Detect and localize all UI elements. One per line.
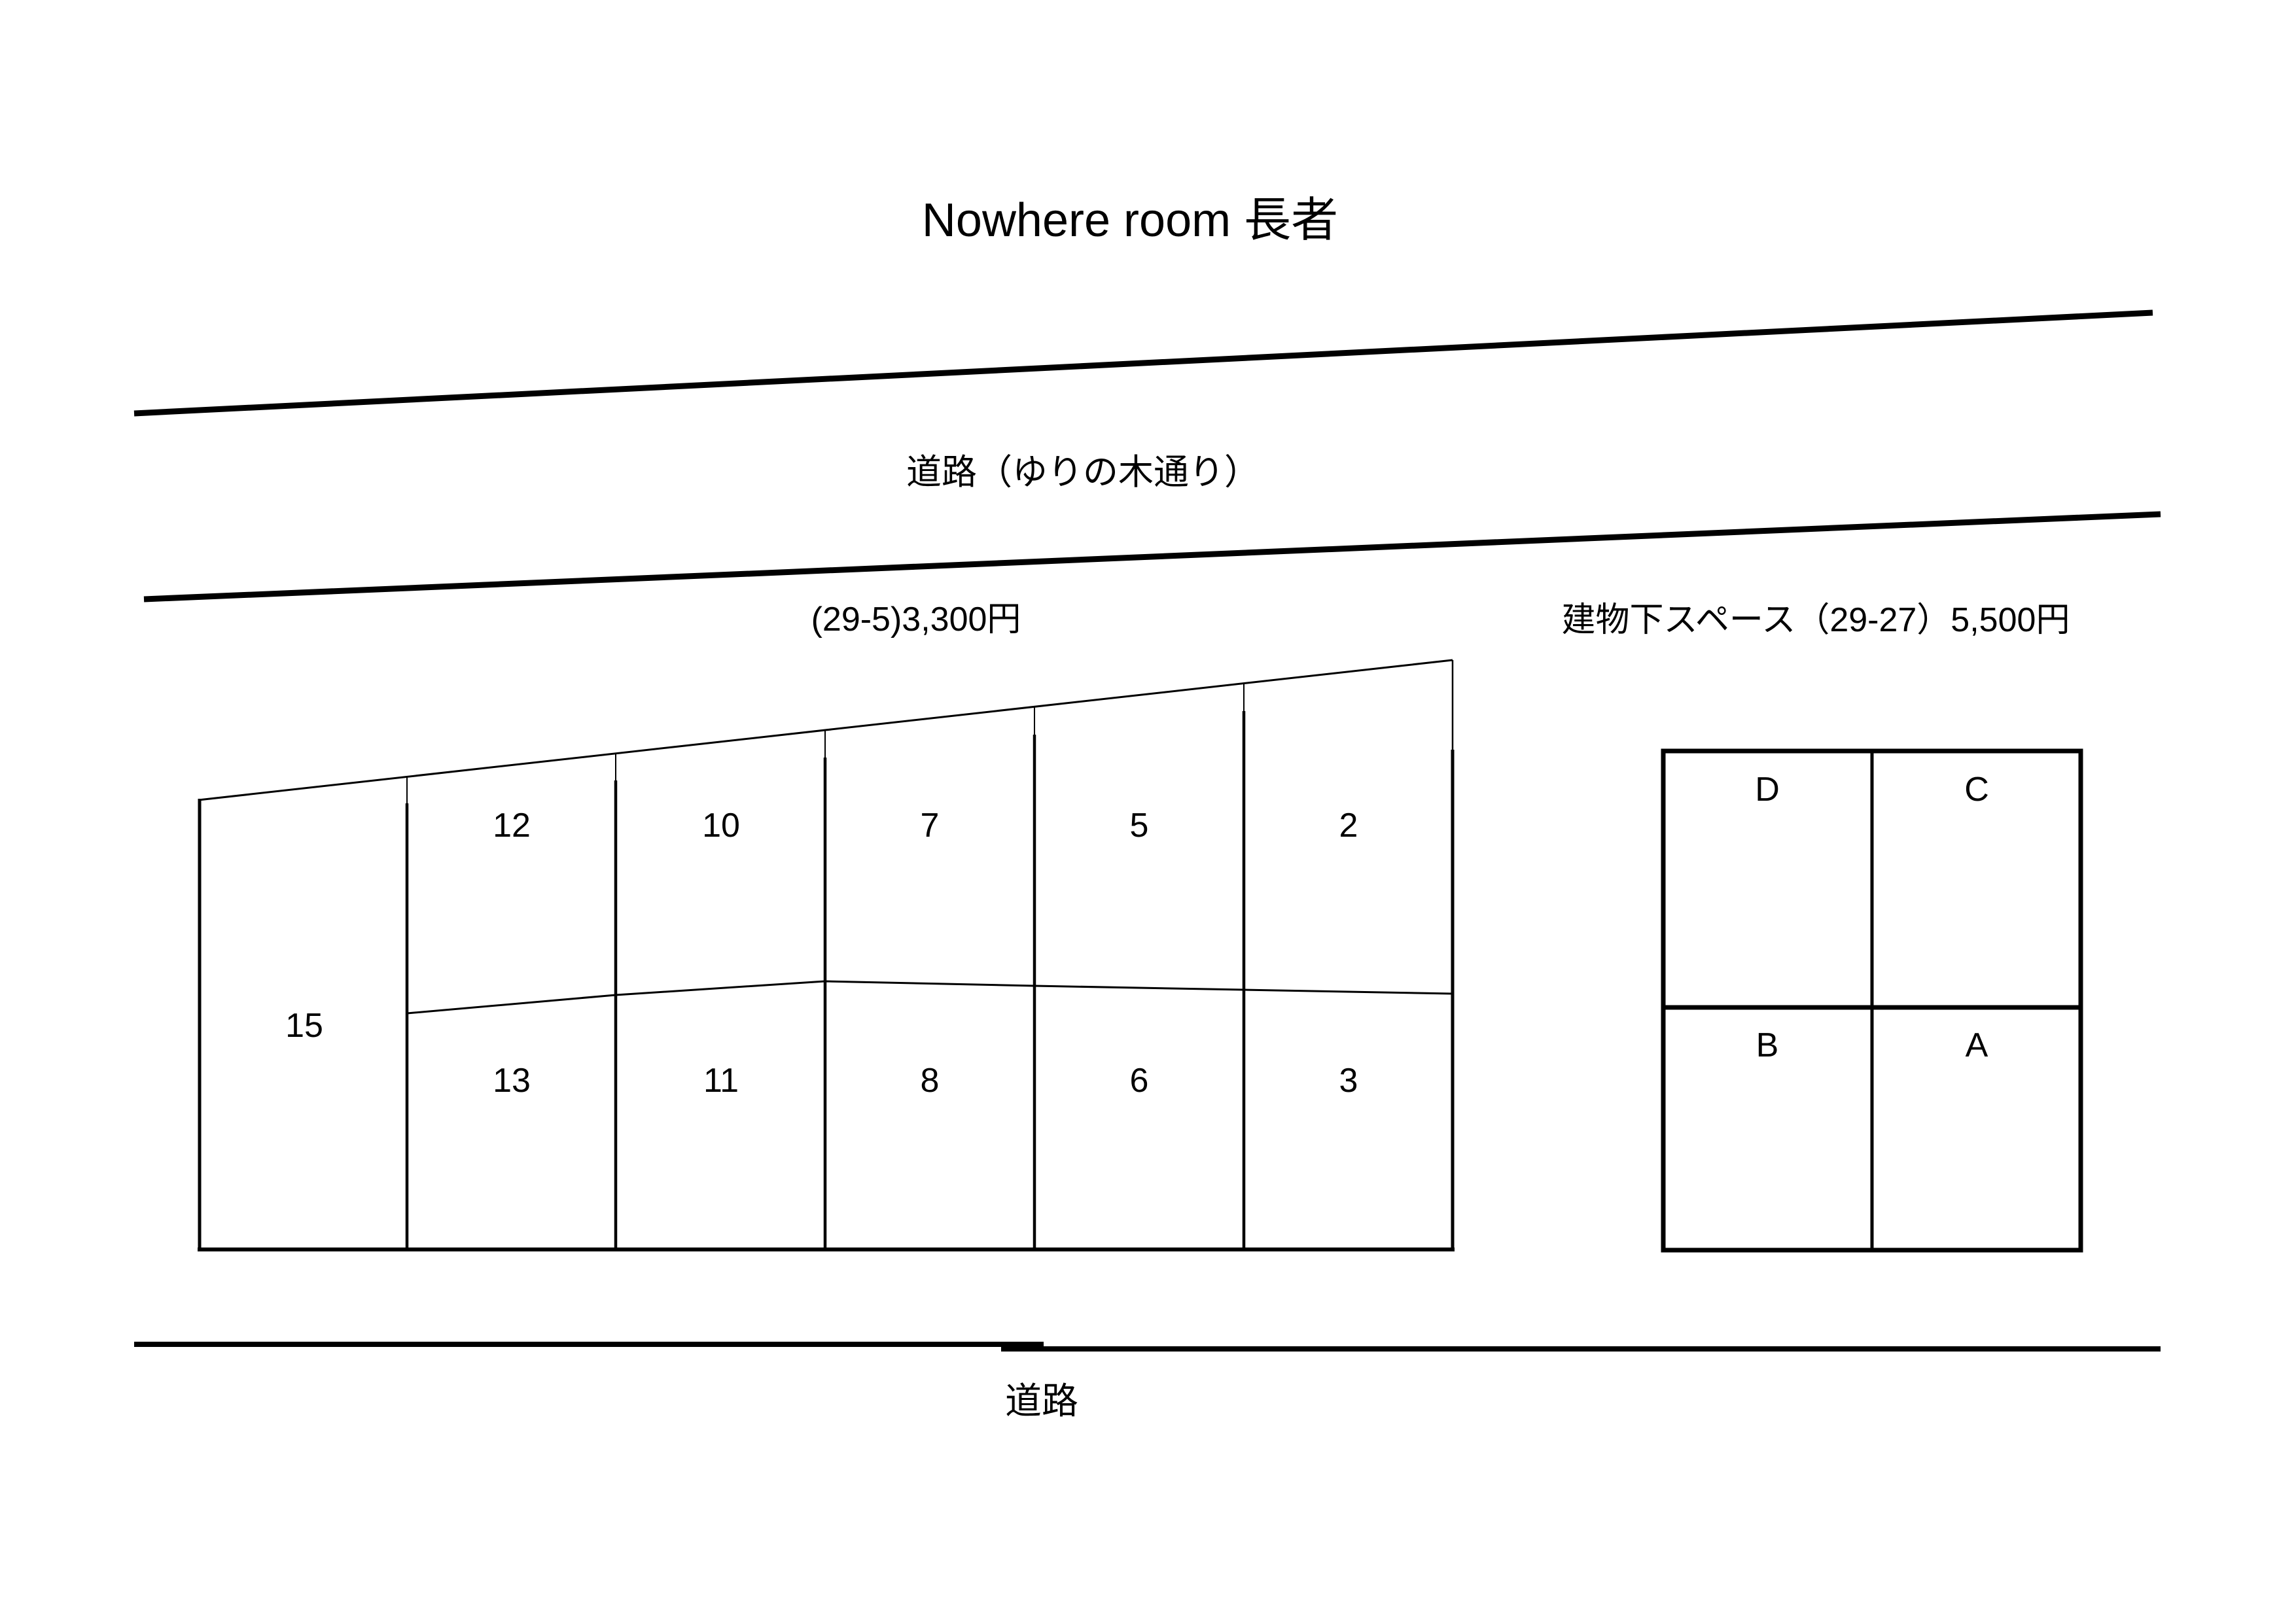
space-label-A: A [1966, 1028, 1988, 1062]
space-label-C: C [1964, 773, 1989, 807]
space-label-D: D [1755, 773, 1780, 807]
space-label-15: 15 [285, 1009, 323, 1043]
open-lot-price-label: (29-5)3,300円 [811, 602, 1021, 637]
space-label-B: B [1756, 1028, 1779, 1062]
space-label-3: 3 [1339, 1064, 1358, 1098]
space-label-10: 10 [702, 809, 740, 843]
top-road-lower-line [144, 514, 2161, 599]
covered-lot-title-label: 建物下スペース（29-27）5,500円 [1562, 603, 2070, 637]
space-label-6: 6 [1130, 1064, 1149, 1098]
space-label-13: 13 [493, 1064, 531, 1098]
bottom-road-label: 道路 [1005, 1383, 1078, 1420]
space-label-12: 12 [493, 809, 531, 843]
space-label-11: 11 [703, 1064, 739, 1098]
page-title: Nowhere room 長者 [922, 197, 1338, 244]
space-label-7: 7 [921, 809, 940, 843]
space-label-2: 2 [1339, 809, 1358, 843]
top-road-label: 道路（ゆりの木通り） [906, 455, 1260, 490]
open-lot-row-divider [407, 981, 1453, 1013]
space-label-8: 8 [921, 1064, 940, 1098]
space-label-5: 5 [1130, 809, 1149, 843]
top-road-upper-line [134, 313, 2153, 413]
parking-map: Nowhere room 長者 道路（ゆりの木通り） (29-5)3,300円 … [0, 0, 2296, 1623]
